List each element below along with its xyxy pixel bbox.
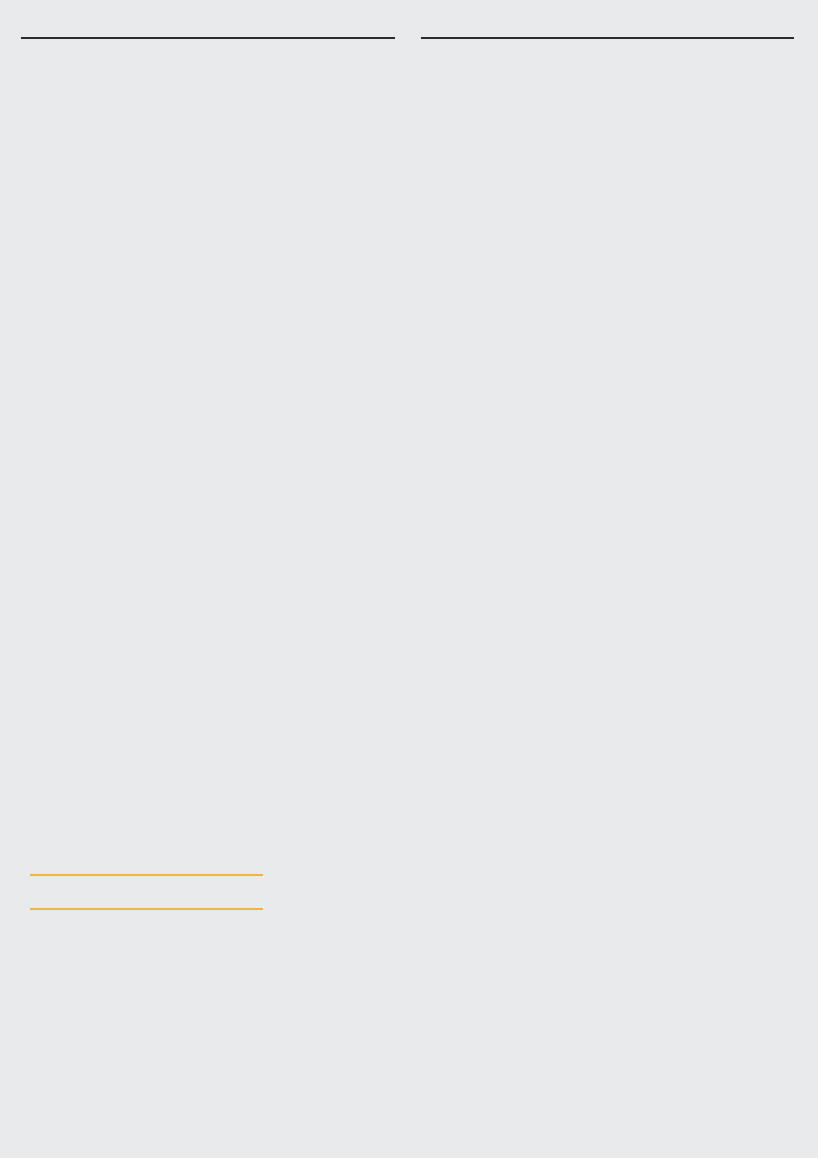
area-list — [30, 856, 360, 926]
divider-line — [30, 874, 263, 876]
divider-line — [30, 908, 263, 910]
floor-plan-render — [0, 0, 818, 1158]
